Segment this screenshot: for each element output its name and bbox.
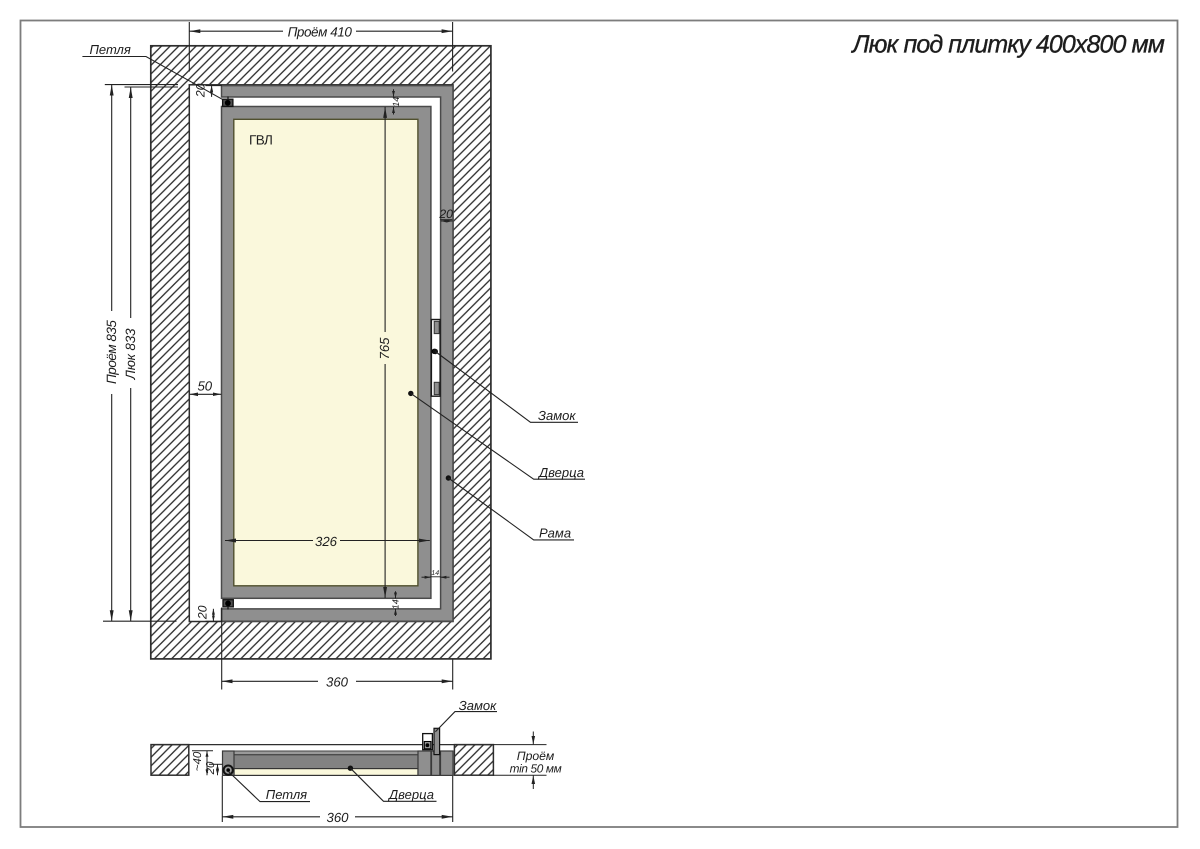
svg-text:14: 14 — [391, 97, 401, 107]
svg-text:Люк под плитку 400х800 мм: Люк под плитку 400х800 мм — [850, 31, 1164, 59]
svg-text:Замок: Замок — [459, 698, 497, 713]
svg-text:14: 14 — [431, 570, 439, 577]
svg-text:326: 326 — [315, 534, 338, 549]
svg-text:Петля: Петля — [266, 787, 307, 802]
svg-text:765: 765 — [377, 337, 392, 360]
svg-text:360: 360 — [326, 810, 349, 825]
svg-text:Проём 410: Проём 410 — [288, 25, 353, 40]
svg-text:min 50 мм: min 50 мм — [510, 761, 562, 775]
svg-text:20: 20 — [194, 83, 208, 98]
svg-text:360: 360 — [326, 675, 349, 690]
svg-text:14: 14 — [391, 599, 401, 609]
svg-text:~40: ~40 — [192, 751, 204, 771]
svg-text:Петля: Петля — [90, 42, 131, 57]
svg-text:Дверца: Дверца — [537, 465, 584, 480]
svg-text:Люк 833: Люк 833 — [123, 328, 138, 380]
svg-text:Дверца: Дверца — [387, 787, 434, 802]
svg-text:20: 20 — [438, 207, 453, 221]
svg-text:Замок: Замок — [538, 408, 576, 423]
svg-text:Рама: Рама — [539, 526, 571, 541]
svg-text:50: 50 — [197, 378, 212, 393]
svg-text:Проём 835: Проём 835 — [104, 320, 119, 384]
svg-text:ГВЛ: ГВЛ — [249, 133, 272, 148]
svg-text:20: 20 — [195, 605, 209, 620]
svg-text:20: 20 — [205, 761, 217, 775]
